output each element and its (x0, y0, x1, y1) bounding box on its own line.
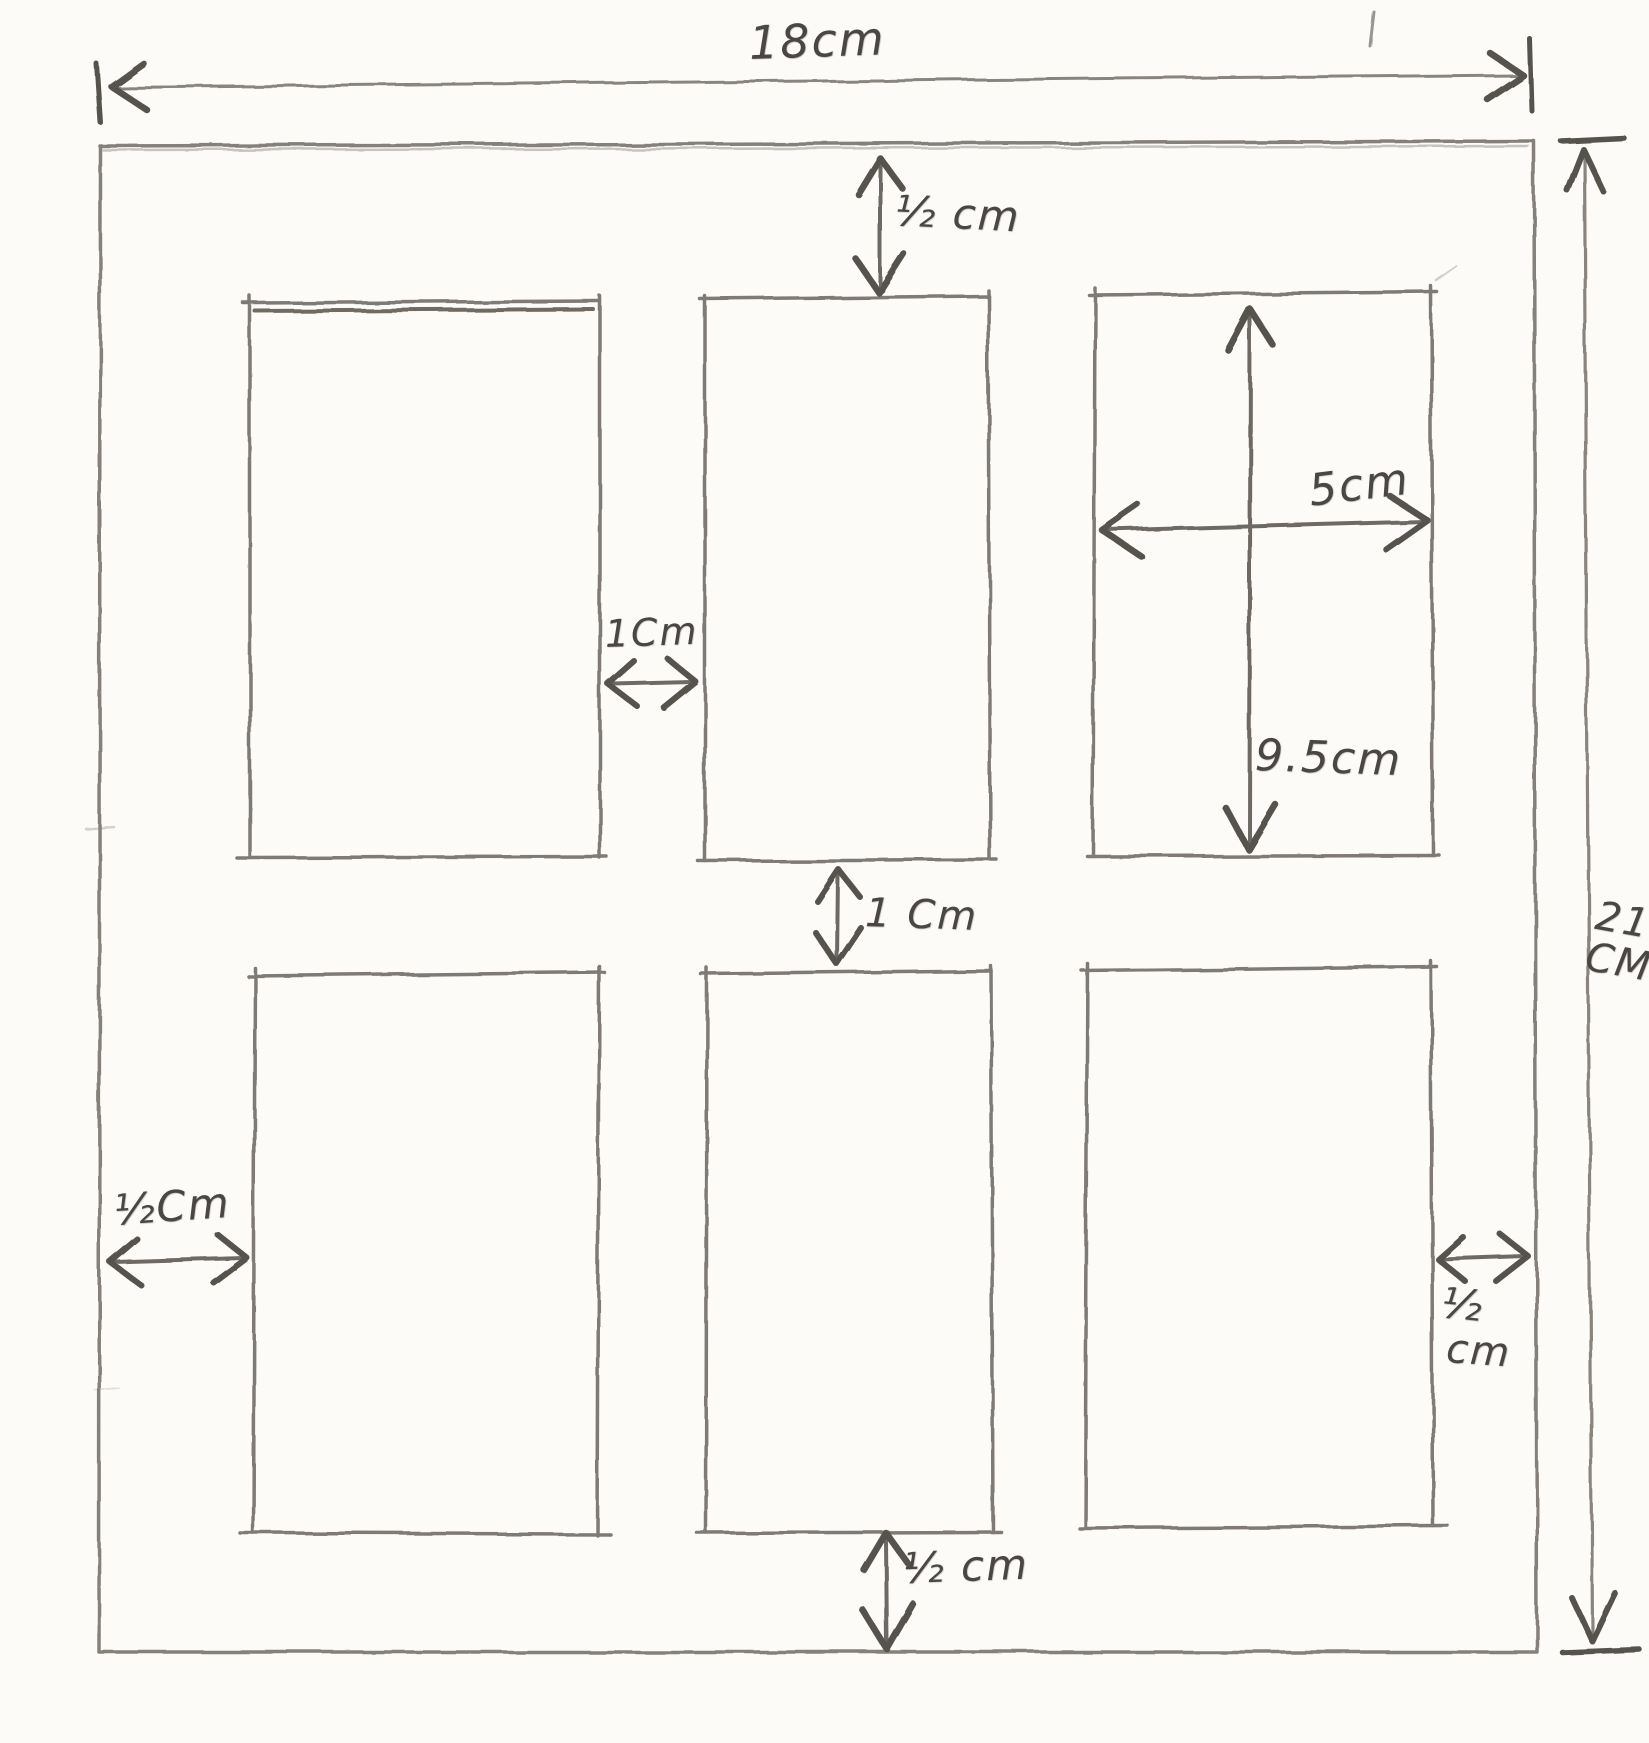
dim-leftmargin-shaft (114, 1258, 244, 1262)
label-bottom-margin: ½ cm (902, 1540, 1030, 1593)
label-right-margin-fraction: ½ (1439, 1278, 1487, 1331)
dim-arrow-right-margin (1438, 1234, 1528, 1282)
cell-r2c1-top (248, 972, 604, 976)
cell-r2c3-top (1082, 967, 1437, 971)
cell-r2c3-bottom (1079, 1526, 1448, 1528)
dim-18cm-shaft (113, 75, 1520, 87)
dim-rowgap-shaft (837, 874, 838, 960)
label-column-gap: 1Cm (604, 609, 699, 656)
dim-21cm-arrowhead-down (1572, 1593, 1615, 1641)
pencil-drawing (0, 0, 1649, 1743)
cell-r1c3-corner-scribble (1436, 266, 1456, 280)
cell-r2c3 (1079, 961, 1448, 1528)
cell-r1c2-top (700, 296, 988, 299)
cell-r2c1 (240, 966, 610, 1535)
cell-r1c3-bottom (1087, 855, 1439, 856)
dim-21cm-tick-top (1561, 138, 1624, 141)
dim-18cm-tick-left (97, 64, 101, 123)
dim-bottommargin-shaft (886, 1540, 887, 1644)
cell-r1c1-top (243, 301, 600, 303)
cell-r2c2-bottom (697, 1532, 1001, 1533)
cell-r1c1 (237, 296, 607, 858)
label-right-margin-unit: cm (1445, 1326, 1513, 1376)
sketch-page: 18cm ½ cm 5cm 9.5cm 1Cm 1 Cm ½Cm ½ cm ½ … (0, 0, 1649, 1743)
cell-r2c1-right (597, 966, 599, 1535)
cell-r1c3-right (1431, 286, 1433, 855)
dim-9p5cm-shaft (1249, 314, 1250, 844)
label-total-width: 18cm (748, 11, 886, 70)
label-cell-height: 9.5cm (1254, 730, 1403, 786)
cell-r2c3-right (1431, 961, 1433, 1526)
cell-r1c3-left (1093, 288, 1095, 856)
cell-r2c2-top (701, 971, 991, 974)
cell-r1c2-bottom (698, 860, 997, 861)
dim-colgap-shaft (612, 682, 692, 684)
cell-r1c1-top-double (255, 309, 593, 311)
dim-arrow-row-gap (815, 869, 861, 964)
cell-r2c1-bottom (240, 1533, 610, 1534)
cell-r1c3-top (1089, 292, 1437, 295)
cell-r2c2-left (706, 968, 707, 1533)
dim-18cm-tick-right (1529, 38, 1531, 110)
cell-r2c2 (697, 966, 1001, 1533)
dim-rightmargin-shaft (1441, 1256, 1525, 1259)
cell-r2c2-right (991, 966, 993, 1532)
label-top-margin: ½ cm (893, 186, 1021, 242)
dim-5cm-shaft (1105, 521, 1424, 530)
cell-r1c2 (698, 290, 997, 861)
stray-mark-top-right (1370, 12, 1374, 46)
dim-21cm-tick-bottom (1562, 1649, 1639, 1652)
dim-arrow-left-margin (110, 1235, 247, 1285)
stray-marks (86, 827, 119, 1390)
dim-21cm-shaft (1584, 152, 1592, 1636)
dim-arrow-column-gap (608, 659, 696, 708)
cell-r2c3-left (1085, 964, 1088, 1527)
label-row-gap: 1 Cm (864, 890, 979, 940)
stray-mark-left-edge (86, 827, 114, 829)
cell-r2c1-left (253, 968, 255, 1533)
cell-r1c2-right (988, 290, 990, 860)
label-left-margin: ½Cm (112, 1178, 232, 1235)
cell-r1c1-bottom (237, 857, 607, 858)
cells (237, 266, 1456, 1535)
